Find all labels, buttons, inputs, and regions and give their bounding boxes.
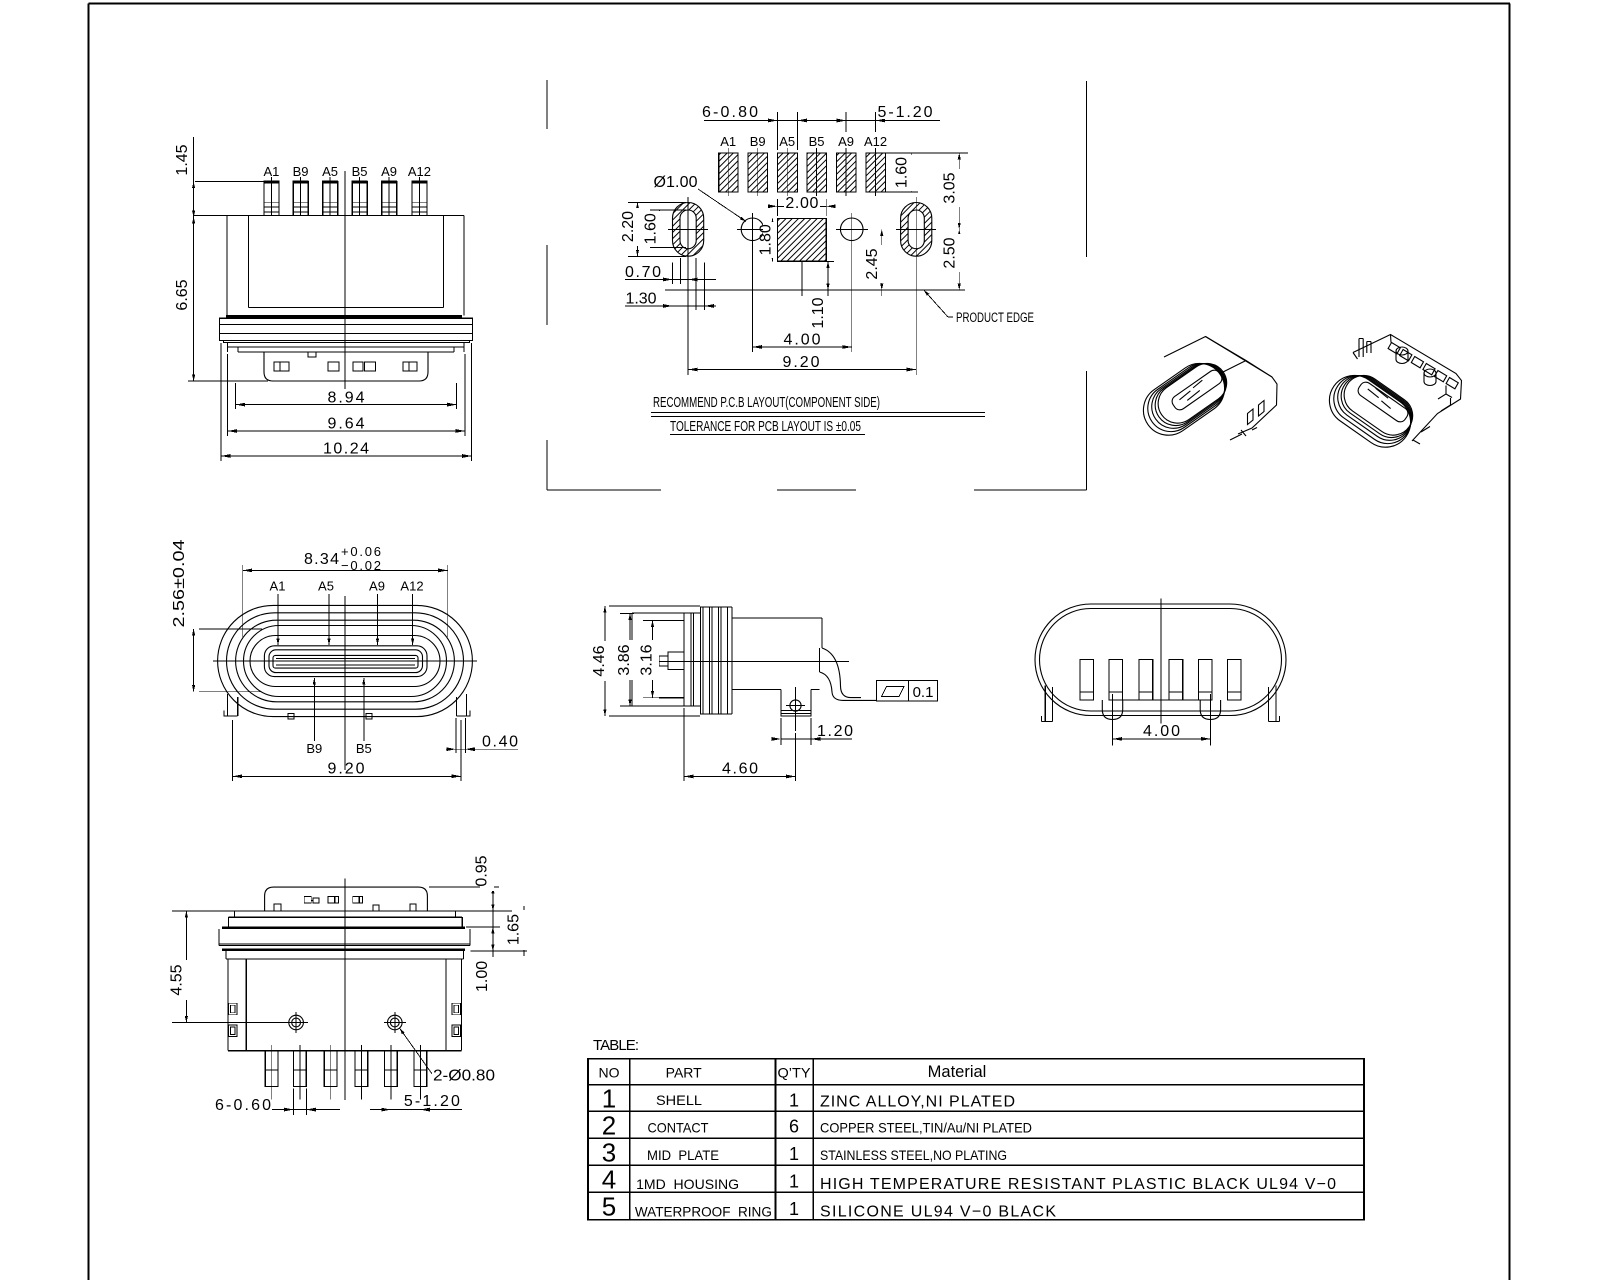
svg-text:A5: A5 — [322, 164, 338, 179]
svg-text:6: 6 — [789, 1117, 799, 1137]
svg-text:1.80: 1.80 — [758, 224, 775, 255]
svg-text:STAINLESS STEEL,NO PLATING: STAINLESS STEEL,NO PLATING — [820, 1147, 1007, 1163]
svg-text:A1: A1 — [270, 579, 286, 594]
svg-text:1.10: 1.10 — [810, 297, 827, 328]
svg-text:3.16: 3.16 — [639, 644, 656, 675]
svg-text:8.34: 8.34 — [304, 551, 339, 568]
svg-text:1.20: 1.20 — [817, 723, 853, 740]
svg-text:3.86: 3.86 — [616, 644, 633, 675]
svg-text:COPPER STEEL,TIN/Au/NI PLATED: COPPER STEEL,TIN/Au/NI PLATED — [820, 1120, 1032, 1136]
svg-text:−0.02: −0.02 — [341, 558, 381, 573]
svg-text:6.65: 6.65 — [174, 279, 191, 310]
svg-text:+0.06: +0.06 — [341, 544, 381, 559]
svg-text:4: 4 — [602, 1165, 616, 1195]
svg-text:1.60: 1.60 — [894, 157, 911, 188]
svg-text:9.20: 9.20 — [783, 354, 820, 371]
svg-text:B5: B5 — [352, 164, 368, 179]
svg-text:Material: Material — [928, 1063, 987, 1081]
svg-text:2.56±0.04: 2.56±0.04 — [171, 539, 188, 627]
svg-text:A12: A12 — [400, 579, 423, 594]
svg-text:4.55: 4.55 — [168, 964, 185, 995]
svg-text:0.70: 0.70 — [625, 264, 661, 281]
svg-text:WATERPROOF RING: WATERPROOF RING — [635, 1204, 772, 1220]
svg-text:TOLERANCE FOR PCB LAYOUT IS ±0: TOLERANCE FOR PCB LAYOUT IS ±0.05 — [670, 419, 861, 435]
svg-text:2.45: 2.45 — [864, 248, 881, 279]
svg-text:PRODUCT EDGE: PRODUCT EDGE — [956, 310, 1034, 325]
svg-text:0.40: 0.40 — [482, 734, 518, 751]
svg-text:A12: A12 — [864, 134, 887, 149]
svg-text:PART: PART — [666, 1065, 702, 1081]
svg-text:1: 1 — [789, 1090, 799, 1110]
svg-text:A9: A9 — [838, 134, 854, 149]
svg-text:4.46: 4.46 — [591, 645, 608, 676]
svg-text:HIGH TEMPERATURE RESISTANT PLA: HIGH TEMPERATURE RESISTANT PLASTIC BLACK… — [820, 1176, 1336, 1193]
svg-text:5: 5 — [602, 1191, 616, 1221]
svg-text:10.24: 10.24 — [323, 441, 369, 458]
svg-text:Q’TY: Q’TY — [778, 1065, 812, 1081]
svg-text:0.95: 0.95 — [474, 855, 491, 886]
svg-text:1: 1 — [602, 1084, 616, 1114]
svg-text:TABLE:: TABLE: — [593, 1037, 639, 1054]
svg-text:2.00: 2.00 — [785, 195, 818, 212]
svg-text:Ø1.00: Ø1.00 — [654, 174, 698, 191]
svg-text:A5: A5 — [318, 579, 334, 594]
svg-text:CONTACT: CONTACT — [648, 1120, 709, 1136]
svg-text:2-Ø0.80: 2-Ø0.80 — [433, 1068, 495, 1085]
svg-text:1.30: 1.30 — [626, 291, 657, 308]
svg-text:1: 1 — [789, 1199, 799, 1219]
svg-text:2.20: 2.20 — [620, 211, 637, 242]
svg-text:B9: B9 — [293, 164, 309, 179]
svg-text:1.45: 1.45 — [174, 144, 191, 175]
svg-text:SHELL: SHELL — [656, 1092, 702, 1108]
svg-text:9.64: 9.64 — [328, 416, 365, 433]
svg-text:2.50: 2.50 — [941, 237, 958, 268]
svg-text:A1: A1 — [720, 134, 736, 149]
svg-text:ZINC ALLOY,NI PLATED: ZINC ALLOY,NI PLATED — [820, 1093, 1015, 1110]
svg-text:8.94: 8.94 — [328, 390, 365, 407]
svg-text:9.20: 9.20 — [328, 761, 365, 778]
svg-text:B5: B5 — [809, 134, 825, 149]
svg-text:NO: NO — [599, 1065, 620, 1081]
svg-text:MID PLATE: MID PLATE — [647, 1147, 719, 1163]
svg-text:A1: A1 — [263, 164, 279, 179]
svg-text:4.00: 4.00 — [1143, 723, 1180, 740]
svg-text:A9: A9 — [369, 579, 385, 594]
svg-text:A5: A5 — [779, 134, 795, 149]
svg-text:B9: B9 — [306, 741, 322, 756]
svg-text:RECOMMEND P.C.B LAYOUT(COMPONE: RECOMMEND P.C.B LAYOUT(COMPONENT SIDE) — [653, 395, 880, 411]
svg-text:1: 1 — [789, 1172, 799, 1192]
svg-text:1.60: 1.60 — [643, 213, 660, 244]
svg-text:1MD HOUSING: 1MD HOUSING — [636, 1176, 739, 1192]
svg-text:1.65: 1.65 — [506, 914, 523, 945]
svg-text:B5: B5 — [356, 741, 372, 756]
svg-text:3: 3 — [602, 1137, 616, 1167]
svg-text:A12: A12 — [408, 164, 431, 179]
svg-text:1: 1 — [789, 1144, 799, 1164]
svg-text:SILICONE UL94 V−0 BLACK: SILICONE UL94 V−0 BLACK — [820, 1204, 1056, 1221]
svg-text:A9: A9 — [381, 164, 397, 179]
svg-text:3.05: 3.05 — [941, 172, 958, 203]
svg-text:0.1: 0.1 — [913, 684, 934, 701]
svg-text:B9: B9 — [750, 134, 766, 149]
svg-text:1.00: 1.00 — [474, 961, 491, 992]
svg-text:2: 2 — [602, 1111, 616, 1141]
svg-text:4.60: 4.60 — [722, 761, 758, 778]
svg-text:4.00: 4.00 — [784, 332, 821, 349]
